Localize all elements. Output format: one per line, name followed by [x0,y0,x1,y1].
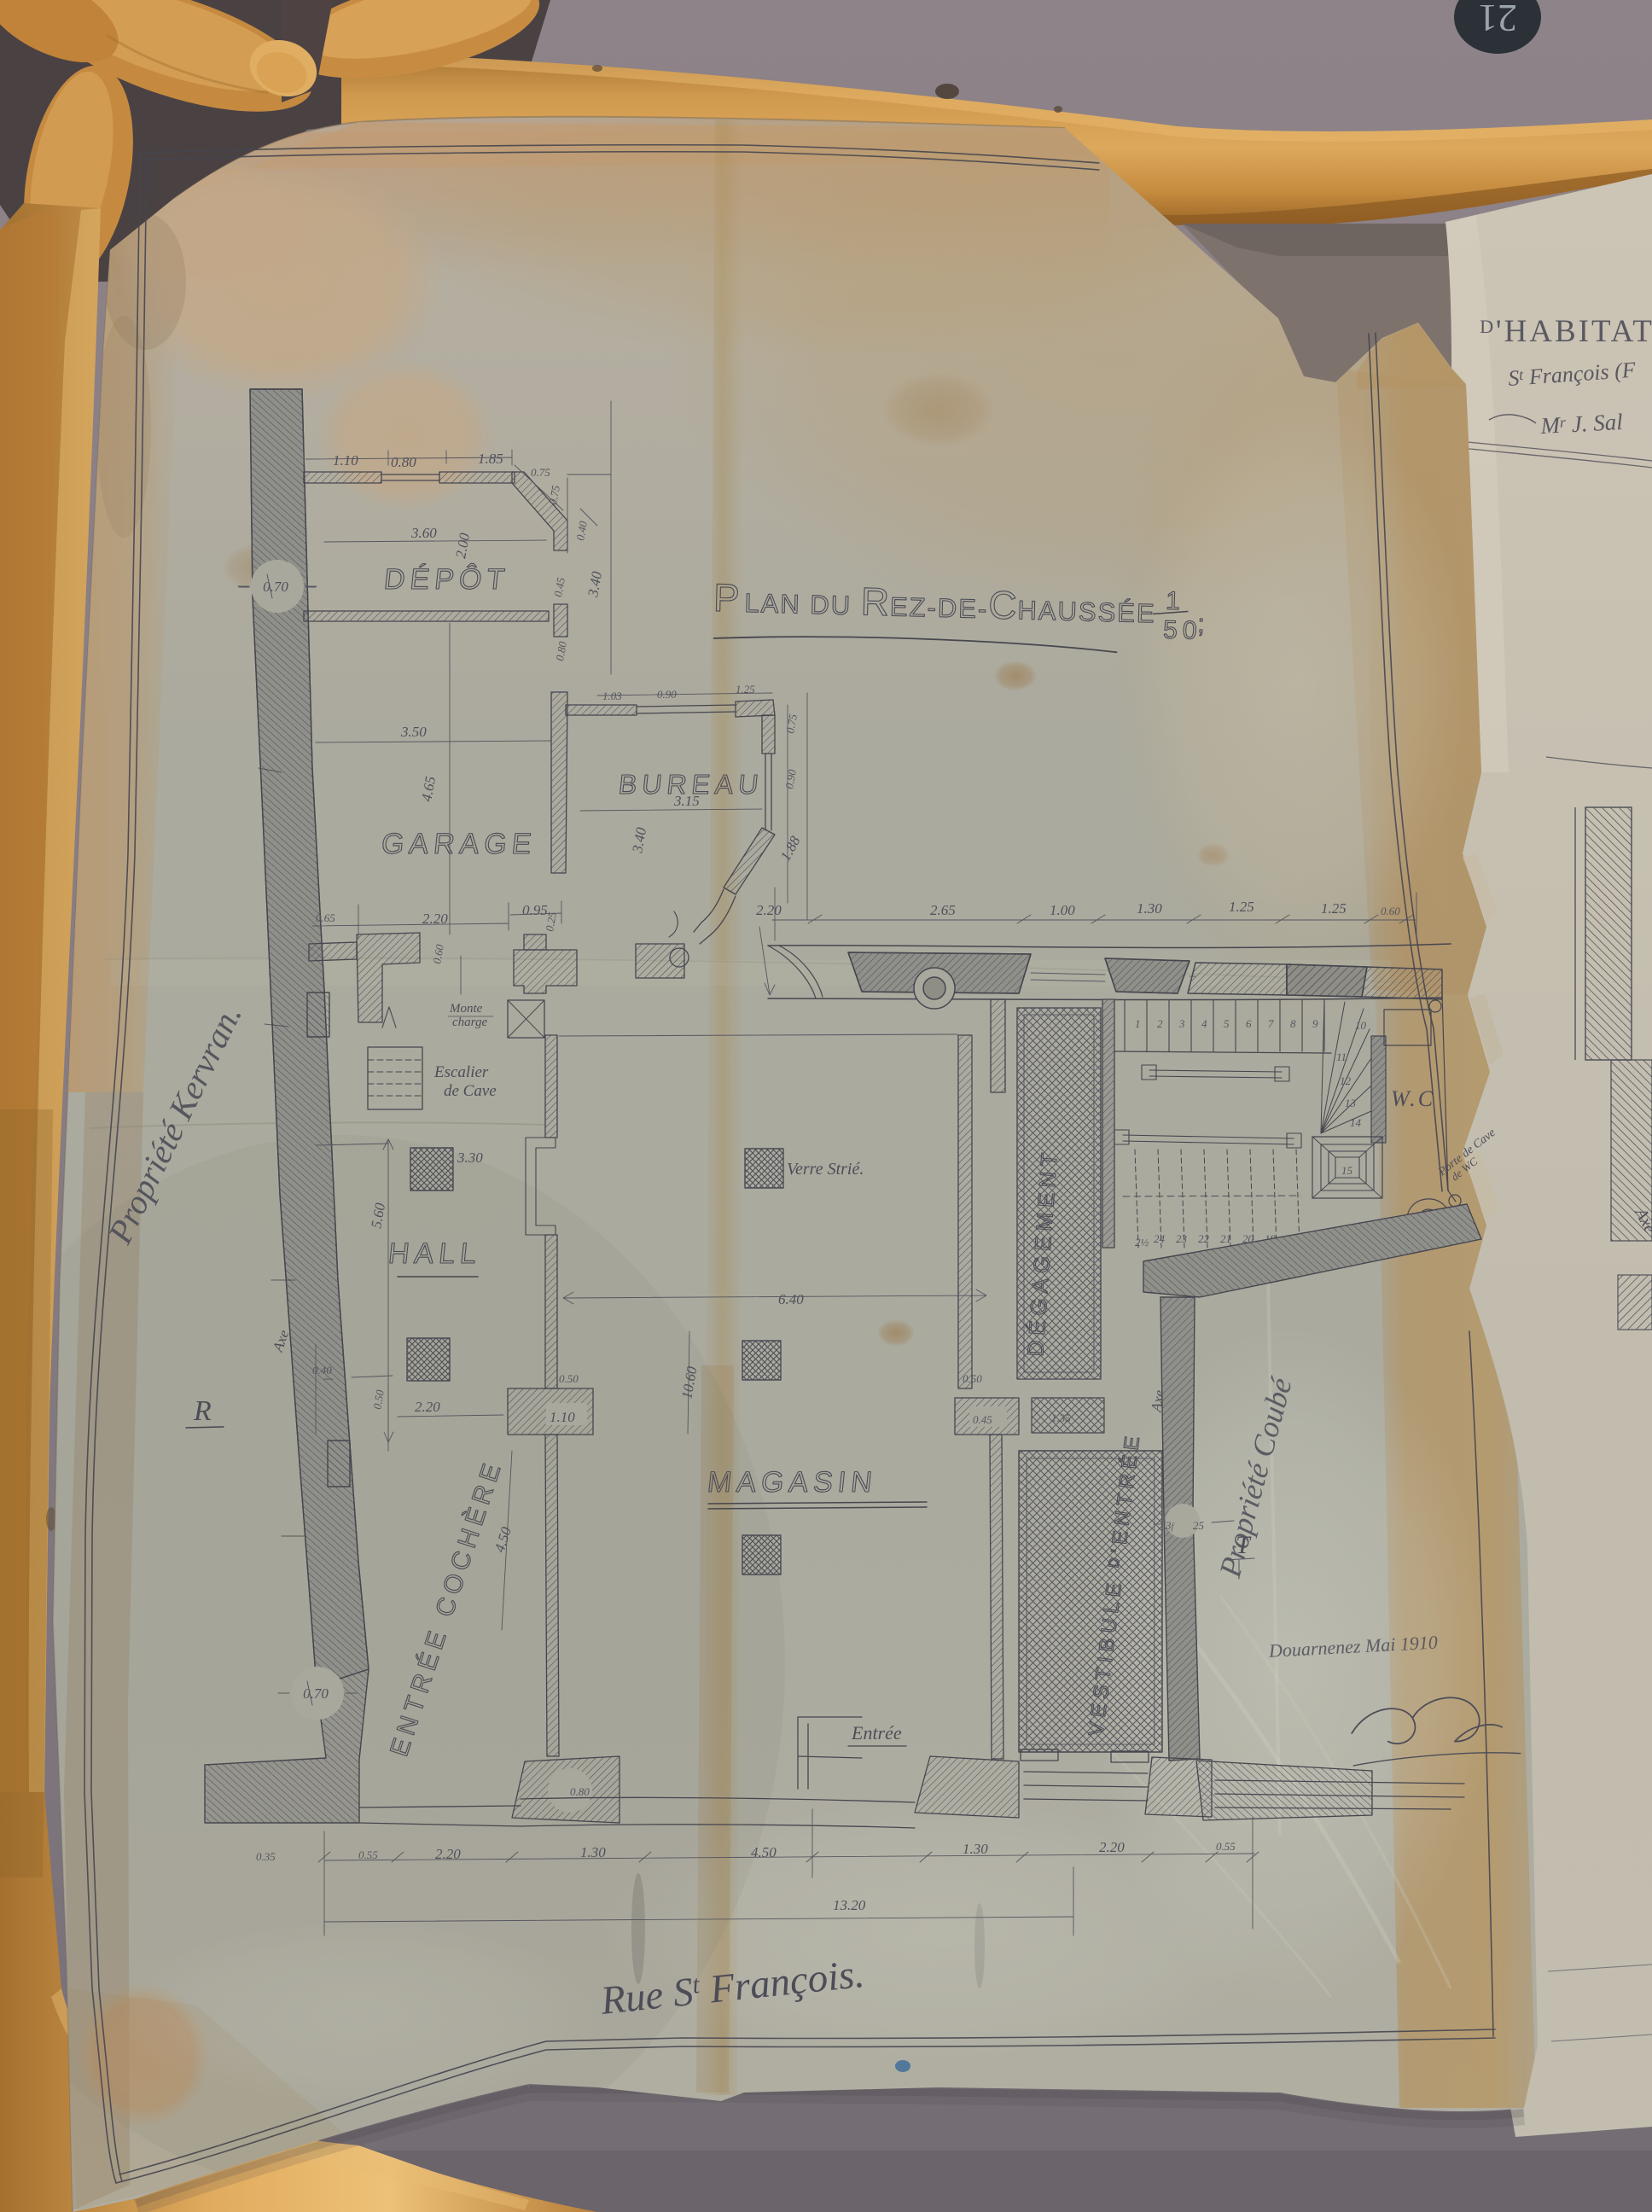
svg-text:2.20: 2.20 [435,1846,461,1862]
svg-text:1.30: 1.30 [1137,900,1162,917]
svg-text:HALL: HALL [387,1237,483,1270]
svg-text:0.90: 0.90 [657,688,677,701]
svg-text:0.55: 0.55 [1216,1840,1236,1853]
svg-text:2.20: 2.20 [756,902,782,918]
svg-text:DÉPÔT: DÉPÔT [382,563,511,596]
svg-text:13: 13 [1345,1097,1357,1109]
svg-text:21: 21 [1478,0,1517,40]
svg-text:Monte: Monte [449,1002,483,1016]
svg-text:1.25: 1.25 [736,683,755,696]
svg-text:1: 1 [1135,1017,1141,1030]
svg-text:12: 12 [1340,1074,1352,1087]
svg-text:1.30: 1.30 [580,1844,606,1860]
svg-text:9: 9 [1312,1017,1318,1030]
svg-text:25: 25 [1193,1519,1205,1532]
svg-text:Verre Strié.: Verre Strié. [787,1160,864,1179]
svg-text:GARAGE: GARAGE [380,828,538,860]
svg-text:1.35: 1.35 [1051,1412,1071,1424]
svg-text:10: 10 [1355,1019,1367,1032]
svg-text:1.03: 1.03 [602,690,622,702]
svg-text:MAGASIN: MAGASIN [706,1466,879,1499]
svg-text:8: 8 [1290,1017,1296,1030]
svg-text:4: 4 [1201,1017,1207,1030]
svg-text:2.20: 2.20 [422,911,448,927]
svg-text:3.15: 3.15 [673,793,700,809]
svg-text:23: 23 [1176,1232,1188,1245]
svg-text:0.80: 0.80 [391,454,416,470]
svg-text:14: 14 [1350,1116,1362,1129]
svg-text:0.70: 0.70 [303,1685,329,1702]
svg-text:R: R [193,1395,212,1427]
svg-text:0.95: 0.95 [522,902,548,918]
svg-text:0.50: 0.50 [559,1372,579,1385]
svg-text:6.40: 6.40 [778,1291,804,1307]
svg-text:1.30: 1.30 [963,1841,988,1857]
svg-text:5: 5 [1224,1017,1230,1030]
svg-text:24: 24 [1154,1232,1166,1245]
svg-text:1.25: 1.25 [1321,900,1347,917]
svg-text:2: 2 [1157,1017,1163,1030]
svg-text:2½: 2½ [1135,1236,1149,1249]
svg-text:ᴰ'HABITATI: ᴰ'HABITATI [1480,314,1652,349]
svg-text:de Cave: de Cave [444,1082,497,1100]
svg-text:W.C: W.C [1391,1086,1435,1111]
svg-text:3.30: 3.30 [457,1150,483,1166]
svg-text:2.65: 2.65 [930,902,956,918]
svg-text:3.60: 3.60 [410,525,437,541]
svg-text:2.20: 2.20 [1099,1839,1125,1855]
svg-text:15: 15 [1341,1164,1353,1177]
svg-text:6: 6 [1246,1017,1252,1030]
svg-text:0.75: 0.75 [531,466,550,479]
svg-text:3.50: 3.50 [400,724,427,740]
svg-text:21: 21 [1220,1232,1231,1245]
svg-text:0.60: 0.60 [1381,905,1400,917]
svg-text:charge: charge [452,1016,487,1029]
svg-text:1.25: 1.25 [1229,899,1254,915]
svg-text:Mr J. Sal: Mr J. Sal [1539,409,1624,439]
svg-text:0.40: 0.40 [312,1364,332,1377]
svg-text:2.20: 2.20 [415,1399,440,1415]
svg-text:50: 50 [1163,616,1202,645]
svg-text:1.10: 1.10 [333,452,358,469]
svg-text:Entrée: Entrée [851,1722,902,1743]
svg-text:0.70: 0.70 [263,579,288,595]
svg-text:T: T [1236,1531,1252,1559]
svg-text:13.20: 13.20 [833,1897,866,1913]
svg-text:3: 3 [1178,1017,1185,1030]
svg-text:22: 22 [1198,1232,1210,1245]
svg-text:1.85: 1.85 [478,451,503,467]
svg-text:0.80: 0.80 [570,1785,590,1798]
svg-text:1.10: 1.10 [550,1409,575,1425]
svg-text:1.00: 1.00 [1050,902,1075,918]
svg-text:Escalier: Escalier [433,1063,489,1081]
svg-text:0.45: 0.45 [973,1413,992,1426]
svg-text:0.65: 0.65 [316,911,335,924]
svg-text:;: ; [1197,610,1210,638]
svg-text:4.50: 4.50 [751,1844,777,1860]
svg-text:7: 7 [1268,1017,1274,1030]
svg-text:0.55: 0.55 [358,1848,378,1861]
svg-text:11: 11 [1336,1051,1347,1063]
svg-text:0.35: 0.35 [256,1850,276,1863]
